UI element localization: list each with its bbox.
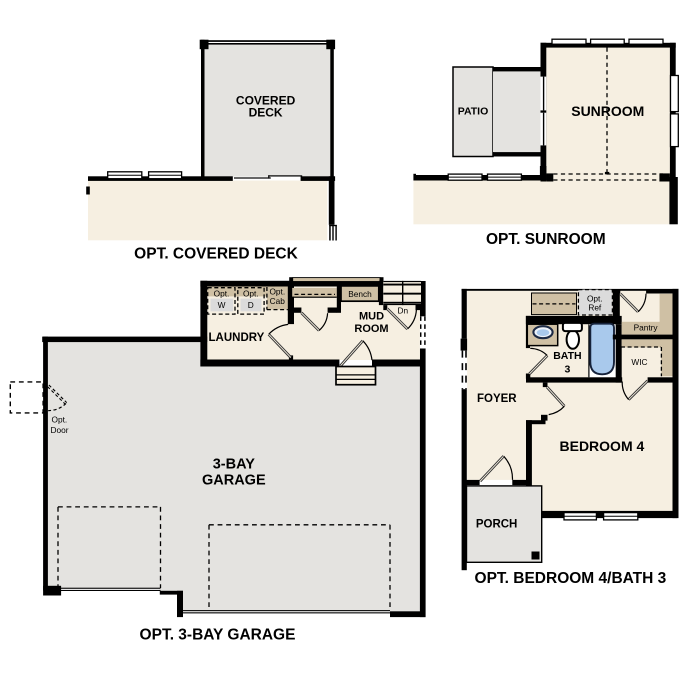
svg-text:GARAGE: GARAGE (202, 473, 266, 489)
svg-text:D: D (248, 300, 254, 310)
svg-text:W: W (218, 300, 226, 310)
svg-text:BEDROOM 4: BEDROOM 4 (560, 438, 645, 454)
svg-text:Dn: Dn (397, 306, 408, 316)
svg-text:Opt.: Opt. (269, 287, 285, 297)
svg-text:Opt.: Opt. (243, 288, 259, 298)
svg-text:BATH: BATH (553, 350, 581, 362)
svg-text:DECK: DECK (249, 106, 283, 120)
svg-text:Opt.: Opt. (214, 288, 230, 298)
svg-text:Opt.: Opt. (52, 415, 68, 425)
svg-text:Ref: Ref (588, 303, 602, 313)
svg-text:FOYER: FOYER (477, 393, 517, 405)
svg-text:Door: Door (51, 425, 69, 435)
svg-text:OPT. COVERED DECK: OPT. COVERED DECK (134, 245, 298, 262)
svg-text:3-BAY: 3-BAY (213, 457, 256, 473)
svg-text:ROOM: ROOM (354, 323, 388, 335)
svg-text:3: 3 (564, 364, 570, 376)
svg-text:LAUNDRY: LAUNDRY (209, 332, 265, 344)
svg-text:Bench: Bench (348, 289, 372, 299)
svg-text:OPT. BEDROOM 4/BATH 3: OPT. BEDROOM 4/BATH 3 (475, 570, 667, 587)
svg-text:WIC: WIC (631, 357, 647, 367)
svg-text:PATIO: PATIO (458, 106, 489, 118)
svg-text:SUNROOM: SUNROOM (571, 103, 644, 119)
svg-text:MUD: MUD (359, 311, 384, 323)
svg-text:Cab: Cab (270, 296, 286, 306)
svg-text:Pantry: Pantry (634, 323, 659, 333)
svg-text:OPT. 3-BAY GARAGE: OPT. 3-BAY GARAGE (140, 626, 296, 643)
svg-text:OPT. SUNROOM: OPT. SUNROOM (486, 231, 606, 248)
svg-text:PORCH: PORCH (476, 518, 518, 530)
